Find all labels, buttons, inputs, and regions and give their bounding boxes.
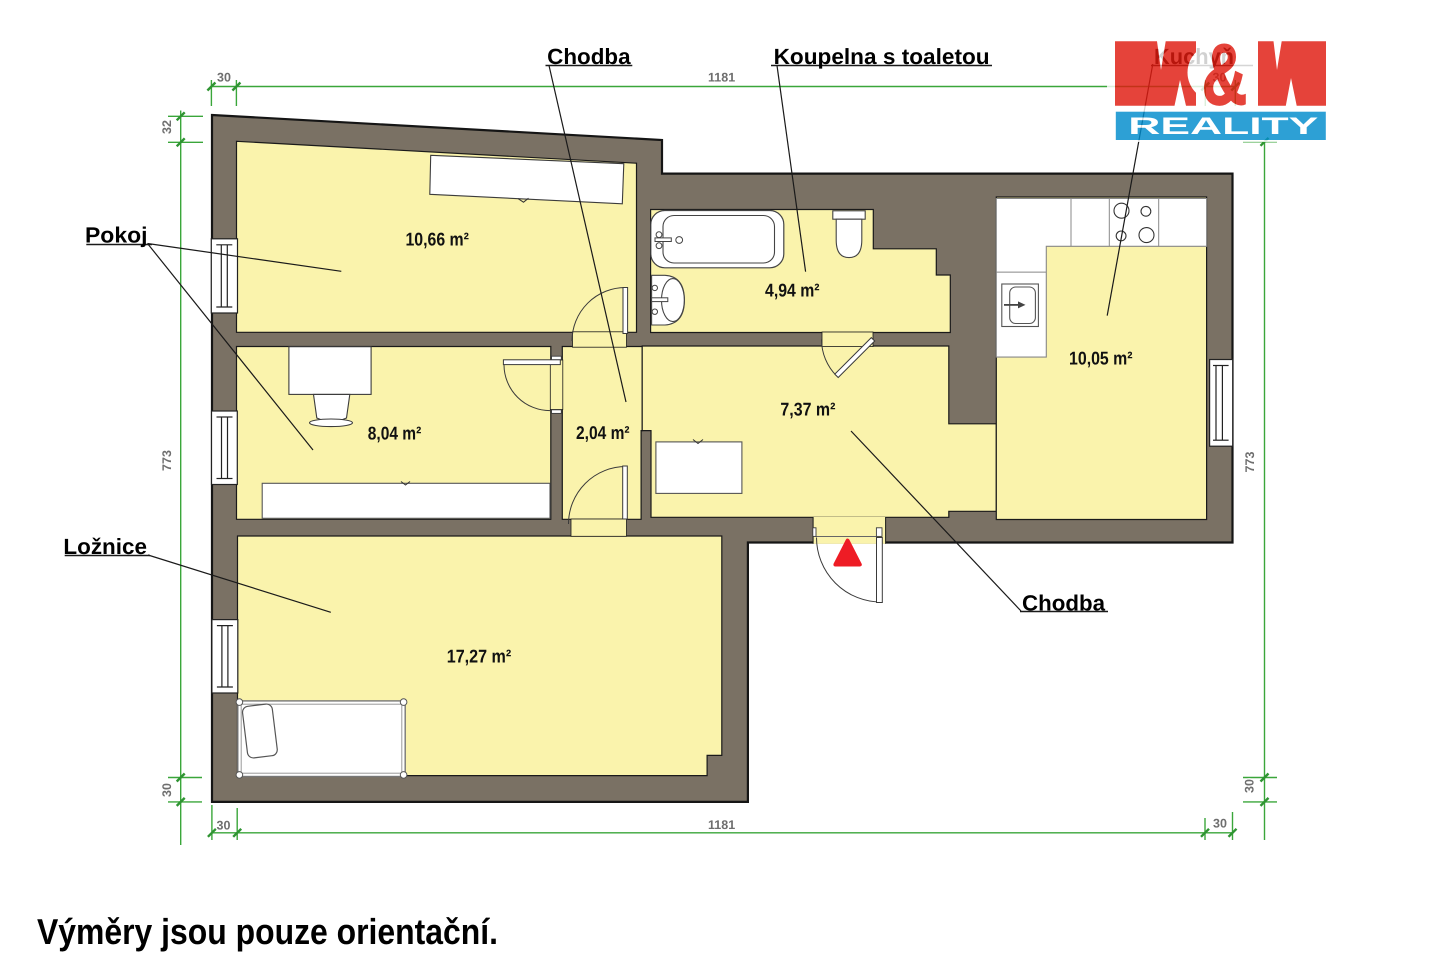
svg-text:Výměry jsou pouze orientační.: Výměry jsou pouze orientační. bbox=[37, 911, 498, 952]
svg-text:Chodba: Chodba bbox=[1022, 591, 1106, 616]
svg-text:30: 30 bbox=[1213, 817, 1227, 831]
svg-text:7,37 m²: 7,37 m² bbox=[780, 399, 835, 420]
svg-text:2,04 m²: 2,04 m² bbox=[576, 422, 630, 443]
svg-text:10,66 m²: 10,66 m² bbox=[405, 229, 469, 250]
svg-text:Koupelna s toaletou: Koupelna s toaletou bbox=[774, 44, 990, 69]
svg-text:&: & bbox=[1202, 27, 1247, 123]
svg-text:10,05 m²: 10,05 m² bbox=[1069, 348, 1133, 369]
svg-text:8,04 m²: 8,04 m² bbox=[368, 423, 422, 444]
svg-text:30: 30 bbox=[160, 783, 174, 797]
svg-text:773: 773 bbox=[1243, 452, 1257, 473]
svg-text:17,27 m²: 17,27 m² bbox=[447, 646, 512, 667]
svg-text:Pokoj: Pokoj bbox=[85, 223, 148, 248]
svg-text:773: 773 bbox=[160, 450, 174, 471]
svg-text:Chodba: Chodba bbox=[547, 44, 631, 69]
svg-text:30: 30 bbox=[1243, 779, 1257, 793]
svg-text:REALITY: REALITY bbox=[1128, 113, 1318, 140]
svg-text:1181: 1181 bbox=[708, 71, 735, 85]
svg-text:Ložnice: Ložnice bbox=[63, 534, 147, 559]
svg-text:4,94 m²: 4,94 m² bbox=[765, 280, 820, 301]
svg-text:30: 30 bbox=[217, 71, 231, 85]
svg-text:30: 30 bbox=[217, 819, 231, 833]
svg-text:1181: 1181 bbox=[708, 818, 735, 832]
svg-text:32: 32 bbox=[160, 120, 174, 134]
